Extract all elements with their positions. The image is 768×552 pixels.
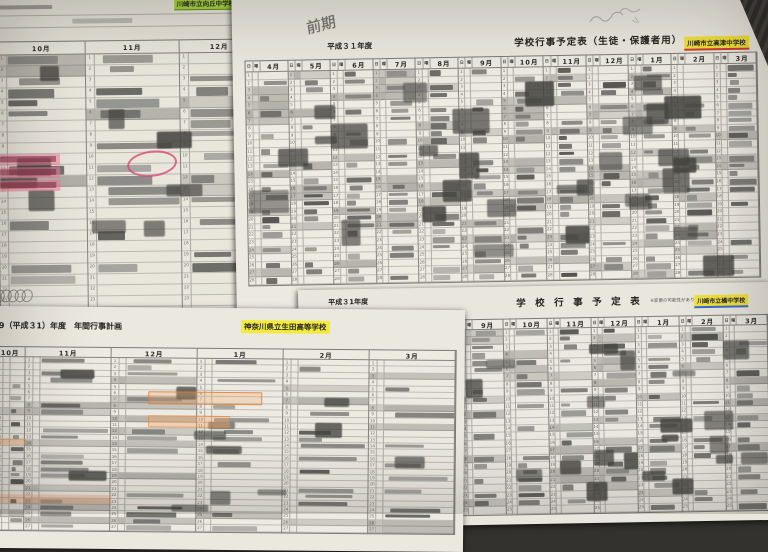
day-cell	[467, 190, 472, 198]
event-text-blob	[11, 473, 20, 476]
day-cell	[511, 242, 516, 250]
day-cell: 26	[377, 260, 383, 268]
event-text-blob	[475, 259, 501, 264]
day-cell: 15	[505, 433, 510, 440]
day-cell: 26	[632, 255, 638, 263]
event-text-blob	[695, 490, 708, 496]
month-label: 6月	[345, 59, 372, 69]
day-cell: 21	[0, 275, 8, 286]
event-text-blob	[731, 239, 752, 245]
day-cell: 24	[507, 499, 512, 506]
day-cell	[723, 201, 728, 209]
day-cell: 20	[504, 212, 510, 220]
event-cell	[262, 277, 291, 285]
day-cell	[509, 129, 514, 137]
month-column: 日曜10月12345678910111213141516171819202122…	[504, 319, 551, 515]
day-cell: 19	[418, 206, 424, 214]
day-cell: 13	[588, 158, 594, 166]
pencil-scribble	[586, 2, 650, 30]
day-cell	[723, 216, 728, 224]
event-text-blob	[260, 134, 273, 140]
event-text-blob	[739, 503, 767, 509]
event-text-blob	[8, 100, 37, 106]
event-text-blob	[474, 368, 502, 373]
day-cell: 3	[0, 77, 6, 88]
day-cell: 19	[182, 251, 190, 262]
day-cell	[686, 334, 690, 341]
event-text-blob	[391, 109, 409, 113]
day-cell: 5	[180, 97, 188, 108]
day-cell	[556, 469, 560, 476]
day-cell: 14	[673, 164, 679, 172]
day-cell	[381, 138, 386, 146]
event-text-blob	[606, 447, 633, 453]
orange-highlight-cell	[148, 391, 262, 405]
events-column	[383, 360, 455, 533]
day-cell: 17	[88, 230, 96, 241]
day-cell	[382, 199, 387, 207]
day-cell	[688, 445, 692, 452]
day-cell: 15	[248, 179, 254, 187]
day-cell	[642, 334, 646, 341]
day-cell	[512, 470, 516, 477]
day-cell: 12	[505, 411, 510, 418]
month-header: 日曜12月	[586, 55, 628, 67]
day-cell	[554, 336, 558, 343]
event-text-blob	[693, 416, 712, 422]
event-text-blob	[517, 426, 534, 431]
day-cell: 26	[334, 261, 340, 269]
day-cell: 7	[672, 110, 678, 118]
day-cell: 22	[504, 227, 510, 235]
day-cell	[466, 345, 470, 352]
event-text-blob	[388, 139, 406, 144]
day-cell: 10	[289, 140, 295, 148]
event-text-blob	[642, 66, 651, 71]
day-cell	[595, 180, 600, 188]
day-cell	[687, 430, 691, 437]
day-cell: 25	[632, 248, 638, 256]
day-cell: 20	[638, 468, 643, 475]
day-cell: 19	[546, 204, 552, 212]
event-text-blob	[432, 237, 454, 243]
event-text-blob	[731, 270, 743, 274]
event-text-blob	[729, 125, 755, 131]
event-text-blob	[729, 133, 748, 138]
day-cell	[554, 329, 558, 336]
day-cell: 5	[629, 96, 635, 104]
day-cell: 20	[674, 209, 680, 217]
day-cell: 7	[459, 114, 465, 122]
day-cell: 25	[377, 252, 383, 260]
day-cell: 18	[0, 242, 8, 253]
day-cell: 24	[639, 497, 644, 504]
event-text-blob	[477, 191, 494, 196]
day-cell: 13	[247, 163, 253, 171]
day-cell	[383, 222, 388, 230]
day-cell: 22	[183, 284, 191, 295]
day-cell: 22	[594, 483, 599, 490]
day-cell	[423, 107, 428, 115]
events-column	[515, 329, 550, 514]
day-cell: 25	[507, 507, 512, 514]
day-cell: 24	[683, 496, 688, 503]
day-cell: 15	[637, 431, 642, 438]
day-cell	[595, 211, 600, 219]
day-cell: 24	[463, 500, 468, 507]
day-cell: 6	[289, 110, 295, 118]
day-cell: 13	[181, 185, 189, 196]
binder-coil-marks	[0, 289, 33, 302]
events-column	[343, 70, 376, 283]
day-cell: 2	[246, 80, 252, 88]
day-cell	[644, 482, 648, 489]
day-cell	[383, 252, 388, 260]
day-cell: 3	[331, 86, 337, 94]
events-column	[556, 67, 589, 280]
day-cell: 8	[672, 118, 678, 126]
day-cell: 20	[682, 467, 687, 474]
day-cell	[510, 197, 515, 205]
day-cell	[383, 267, 388, 275]
day-cell	[466, 107, 471, 115]
day-cell: 23	[551, 491, 556, 498]
day-cell: 26	[249, 262, 255, 270]
day-cell: 1	[724, 326, 729, 333]
month-column: 日曜11月12345678910111213141516171819202122…	[544, 56, 590, 280]
day-cell: 27	[24, 523, 31, 529]
day-cell	[467, 382, 471, 389]
event-text-blob	[305, 80, 318, 86]
day-cell: 13	[503, 159, 509, 167]
calendar-sheet-topleft: 川崎市立向丘中学校 10月123456789101112131415161718…	[0, 0, 264, 324]
day-cell	[424, 183, 429, 191]
event-text-blob	[562, 455, 584, 460]
event-text-blob	[602, 204, 620, 209]
event-text-blob	[433, 245, 450, 249]
day-cell	[424, 176, 429, 184]
day-cell	[553, 242, 558, 250]
day-cell	[295, 94, 300, 102]
month-label: 11月	[558, 56, 585, 66]
day-cell	[551, 128, 556, 136]
day-cell: 9	[289, 132, 295, 140]
day-cell: 12	[460, 152, 466, 160]
day-cell	[600, 453, 604, 460]
month-column: 日曜2月123456789101112131415161718192021222…	[671, 53, 717, 277]
day-cell: 15	[588, 173, 594, 181]
day-cell: 14	[637, 423, 642, 430]
event-text-blob	[687, 187, 709, 192]
day-cell	[510, 366, 514, 373]
day-cell: 19	[589, 203, 595, 211]
day-cell	[556, 476, 560, 483]
day-cell: 15	[418, 176, 424, 184]
day-cell	[298, 246, 303, 254]
event-text-blob	[692, 342, 709, 347]
day-cell	[508, 98, 513, 106]
event-cell	[125, 524, 195, 531]
event-text-blob	[560, 329, 579, 334]
day-cell: 13	[716, 155, 722, 163]
month-column: 日曜6月123456789101112131415161718192021222…	[331, 59, 377, 283]
month-label: 1月	[648, 316, 678, 326]
day-cell: 22	[717, 224, 723, 232]
day-cell: 25	[683, 504, 688, 511]
day-cell: 10	[637, 394, 642, 401]
day-cell: 22	[461, 228, 467, 236]
day-cell: 5	[246, 103, 252, 111]
day-cell	[731, 377, 735, 384]
day-cell: 7	[724, 370, 729, 377]
event-text-blob	[729, 141, 753, 147]
day-cell	[679, 95, 684, 103]
day-cell	[510, 204, 515, 212]
day-cell	[636, 119, 641, 127]
day-cell	[465, 69, 470, 77]
event-text-blob	[299, 469, 329, 473]
day-col-header: 日	[373, 59, 381, 69]
day-cell: 4	[587, 89, 593, 97]
day-cell: 7	[715, 110, 721, 118]
day-cell: 9	[725, 385, 730, 392]
event-text-blob	[474, 160, 494, 165]
day-cell: 19	[631, 202, 637, 210]
day-cell: 22	[291, 231, 297, 239]
day-cell	[724, 231, 729, 239]
day-cell	[469, 500, 473, 507]
day-cell	[382, 176, 387, 184]
day-cell: 24	[589, 241, 595, 249]
day-cell	[599, 409, 603, 416]
day-cell: 19	[506, 462, 511, 469]
day-cell: 1	[416, 69, 422, 77]
day-cell	[295, 72, 300, 80]
events-column	[603, 327, 638, 512]
day-cell	[338, 116, 343, 124]
day-cell	[253, 118, 258, 126]
day-cell: 11	[181, 163, 189, 174]
day-cell	[296, 125, 301, 133]
day-cell: 4	[548, 351, 553, 358]
day-cell: 22	[419, 229, 425, 237]
event-text-blob	[433, 267, 460, 273]
event-text-blob	[694, 445, 706, 449]
day-cell: 18	[182, 240, 190, 251]
orange-highlight-cell	[148, 415, 230, 428]
day-cell: 20	[182, 262, 190, 273]
day-cell: 8	[545, 120, 551, 128]
day-cell: 18	[461, 198, 467, 206]
day-cell: 17	[682, 445, 687, 452]
day-cell: 14	[588, 165, 594, 173]
day-cell: 3	[636, 342, 641, 349]
day-cell: 8	[549, 380, 554, 387]
month-column: 日曜9月123456789101112131415161718192021222…	[460, 320, 507, 516]
event-text-blob	[388, 154, 406, 158]
day-cell: 10	[502, 136, 508, 144]
month-label: 12月	[601, 55, 628, 65]
day-cell	[680, 179, 685, 187]
day-cell	[340, 200, 345, 208]
day-cell	[639, 271, 644, 279]
day-cell: 12	[503, 151, 509, 159]
day-cell	[424, 130, 429, 138]
event-text-blob	[263, 164, 289, 168]
day-cell: 1	[680, 326, 685, 333]
day-cell: 14	[725, 422, 730, 429]
event-text-blob	[109, 186, 181, 195]
day-cell	[551, 113, 556, 121]
day-cell	[733, 503, 737, 510]
day-cell: 8	[725, 377, 730, 384]
day-cell	[643, 379, 647, 386]
day-cell	[552, 166, 557, 174]
day-cell: 14	[460, 167, 466, 175]
day-cell: 24	[462, 243, 468, 251]
event-text-blob	[347, 216, 371, 220]
event-text-blob	[564, 344, 577, 350]
day-cell: 27	[377, 268, 383, 276]
event-text-blob	[653, 476, 668, 480]
day-cell	[596, 249, 601, 257]
day-cell	[340, 245, 345, 253]
day-cell: 15	[503, 174, 509, 182]
annual-plan-sheet-ikuta: 9（平成３1）年度 年間行事計画 神奈川県立生田高等学校 10月12345678…	[0, 306, 465, 552]
event-text-blob	[385, 515, 430, 518]
event-text-blob	[644, 150, 653, 154]
day-cell: 26	[675, 255, 681, 263]
day-cell	[644, 453, 648, 460]
event-text-blob	[516, 167, 534, 173]
day-cell	[689, 504, 693, 511]
events-column	[429, 69, 462, 282]
day-cell: 7	[246, 118, 252, 126]
day-cell: 14	[375, 169, 381, 177]
month-label: 7月	[388, 59, 415, 69]
day-cell	[594, 112, 599, 120]
day-cell: 15	[375, 176, 381, 184]
day-cell	[593, 81, 598, 89]
day-cell	[599, 402, 603, 409]
event-text-blob	[643, 119, 664, 124]
event-text-blob	[729, 163, 744, 167]
day-cell: 11	[503, 144, 509, 152]
day-cell	[731, 399, 735, 406]
day-cell: 21	[546, 219, 552, 227]
event-text-blob	[602, 181, 611, 186]
day-cell	[253, 125, 258, 133]
event-text-blob	[605, 417, 618, 422]
day-cell: 14	[181, 196, 189, 207]
event-text-blob	[475, 175, 501, 179]
day-cell: 8	[374, 123, 380, 131]
day-cell: 15	[716, 170, 722, 178]
day-cell: 23	[717, 231, 723, 239]
day-cell	[600, 483, 604, 490]
day-cell	[253, 148, 258, 156]
day-cell	[636, 73, 641, 81]
day-cell	[509, 167, 514, 175]
day-cell	[552, 158, 557, 166]
month-label: 8月	[430, 58, 457, 68]
day-cell: 11	[87, 164, 95, 175]
day-cell: 28	[377, 275, 383, 283]
day-cell	[645, 497, 649, 504]
day-cell: 10	[181, 152, 189, 163]
day-cell: 22	[506, 485, 511, 492]
day-cell	[381, 154, 386, 162]
day-cell	[680, 201, 685, 209]
day-cell	[596, 271, 601, 279]
day-cell	[383, 245, 388, 253]
event-text-blob	[304, 194, 323, 198]
day-cell	[732, 459, 736, 466]
day-cell	[511, 388, 515, 395]
day-cell	[511, 403, 515, 410]
day-cell	[297, 178, 302, 186]
event-text-blob	[432, 229, 445, 234]
day-cell: 14	[716, 163, 722, 171]
day-cell: 8	[87, 131, 95, 142]
day-cell	[644, 467, 648, 474]
day-cell	[551, 82, 556, 90]
event-text-blob	[432, 222, 455, 227]
day-cell	[721, 94, 726, 102]
day-cell: 22	[632, 225, 638, 233]
day-cell: 1	[592, 328, 597, 335]
day-cell: 11	[545, 143, 551, 151]
day-cell	[467, 404, 471, 411]
day-cell	[557, 491, 561, 498]
day-cell	[730, 355, 734, 362]
month-column: 3月12345678910111213141516171819202122232…	[368, 350, 456, 533]
day-cell	[679, 126, 684, 134]
day-cell	[295, 79, 300, 87]
day-cell: 10	[630, 134, 636, 142]
day-cell: 9	[715, 125, 721, 133]
day-cell: 16	[638, 438, 643, 445]
events-column	[258, 72, 291, 285]
event-text-blob	[11, 480, 24, 484]
schedule-table: 日曜9月123456789101112131415161718192021222…	[458, 314, 768, 516]
event-text-blob	[391, 245, 414, 251]
day-cell	[254, 163, 259, 171]
day-cell	[467, 426, 471, 433]
day-cell: 4	[672, 88, 678, 96]
day-cell: 27	[282, 526, 289, 532]
day-cell	[598, 350, 602, 357]
day-cell	[424, 138, 429, 146]
day-cell: 19	[726, 459, 731, 466]
month-label: 9月	[473, 57, 500, 67]
day-cell: 16	[726, 436, 731, 443]
day-cell: 5	[86, 98, 94, 109]
event-text-blob	[519, 492, 545, 497]
day-cell: 27	[0, 523, 1, 529]
page-title: 9（平成３1）年度 年間行事計画	[0, 320, 122, 332]
month-column: 日曜7月123456789101112131415161718192021222…	[373, 58, 419, 282]
day-cell: 21	[726, 473, 731, 480]
day-cell: 25	[547, 249, 553, 257]
event-cell	[383, 527, 453, 534]
day-cell: 8	[181, 130, 189, 141]
day-cell	[681, 224, 686, 232]
event-text-blob	[346, 163, 358, 168]
day-cell: 16	[550, 440, 555, 447]
day-cell: 20	[248, 217, 254, 225]
day-cell	[724, 246, 729, 254]
